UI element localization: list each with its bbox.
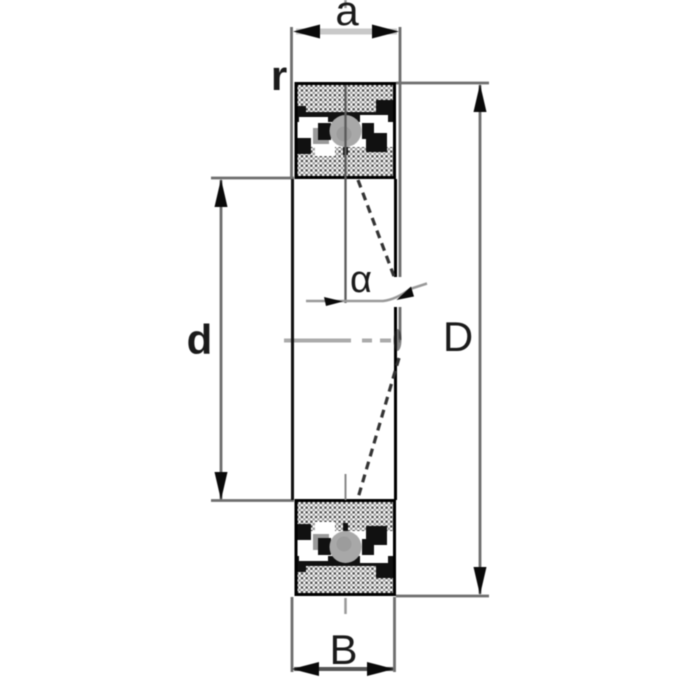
svg-text:D: D xyxy=(443,313,473,360)
svg-text:B: B xyxy=(329,626,357,673)
svg-text:r: r xyxy=(271,52,287,99)
svg-text:d: d xyxy=(187,316,213,363)
svg-text:α: α xyxy=(350,259,372,301)
svg-text:a: a xyxy=(335,0,359,34)
